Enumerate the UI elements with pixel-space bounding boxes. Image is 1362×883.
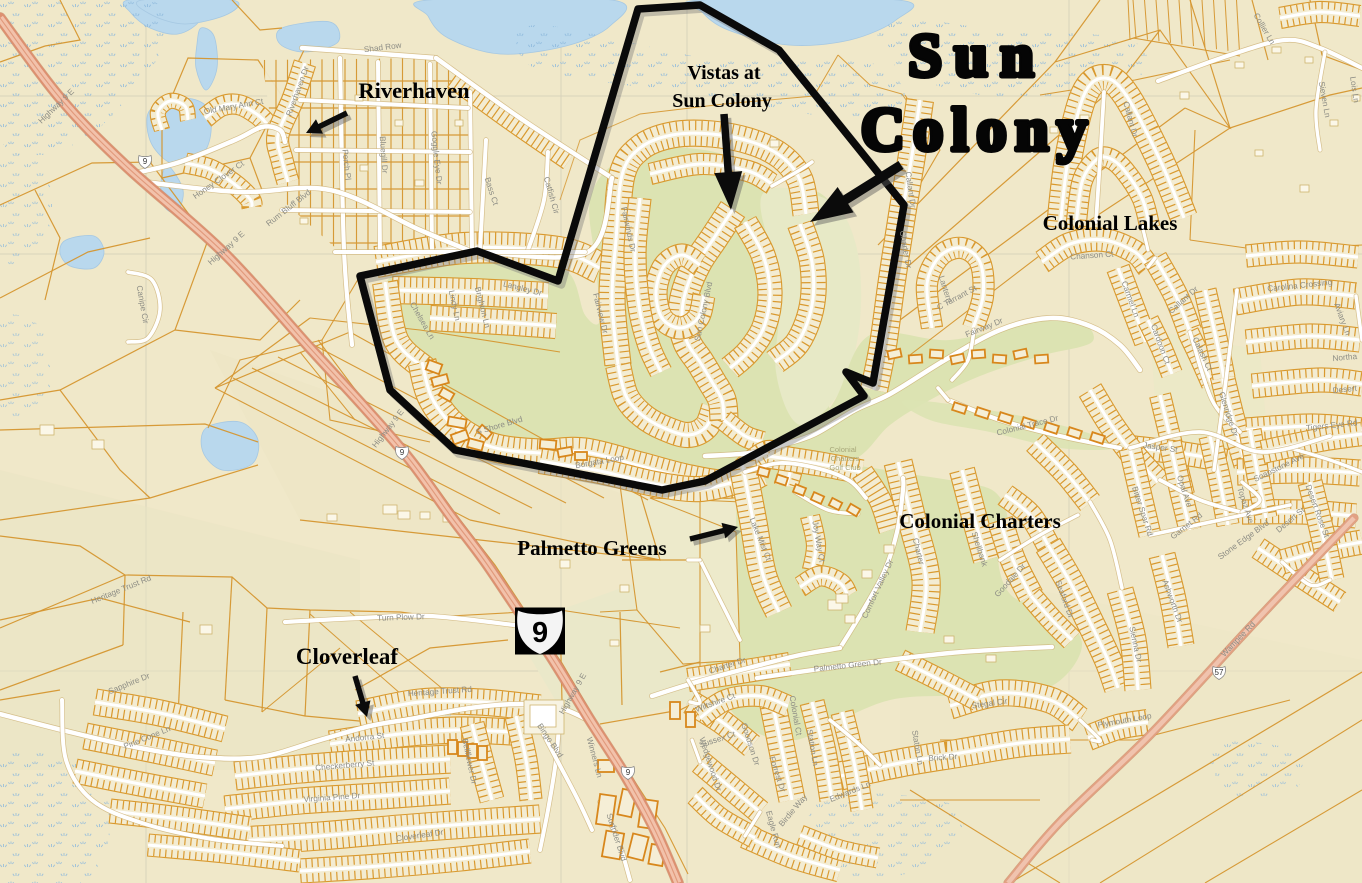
svg-text:Cloverleaf: Cloverleaf (296, 644, 399, 669)
svg-text:Riverhaven: Riverhaven (358, 78, 470, 103)
svg-text:Charters: Charters (831, 454, 860, 463)
svg-text:Sun: Sun (908, 23, 1046, 90)
svg-text:Colonial Lakes: Colonial Lakes (1043, 211, 1178, 235)
svg-text:9: 9 (143, 157, 148, 166)
svg-text:9: 9 (532, 617, 548, 649)
svg-text:Colony: Colony (861, 97, 1095, 164)
svg-text:9: 9 (626, 768, 631, 777)
svg-text:Turn Plow Dr: Turn Plow Dr (377, 612, 425, 623)
svg-text:Colonial: Colonial (829, 445, 856, 454)
svg-text:Golf Club: Golf Club (829, 463, 860, 472)
svg-text:Sun Colony: Sun Colony (672, 90, 772, 112)
svg-text:57: 57 (1215, 668, 1224, 677)
svg-text:9: 9 (400, 448, 405, 457)
svg-text:Vistas at: Vistas at (687, 62, 760, 84)
svg-text:Colonial Charters: Colonial Charters (899, 509, 1061, 533)
svg-text:Palmetto Greens: Palmetto Greens (517, 536, 666, 560)
